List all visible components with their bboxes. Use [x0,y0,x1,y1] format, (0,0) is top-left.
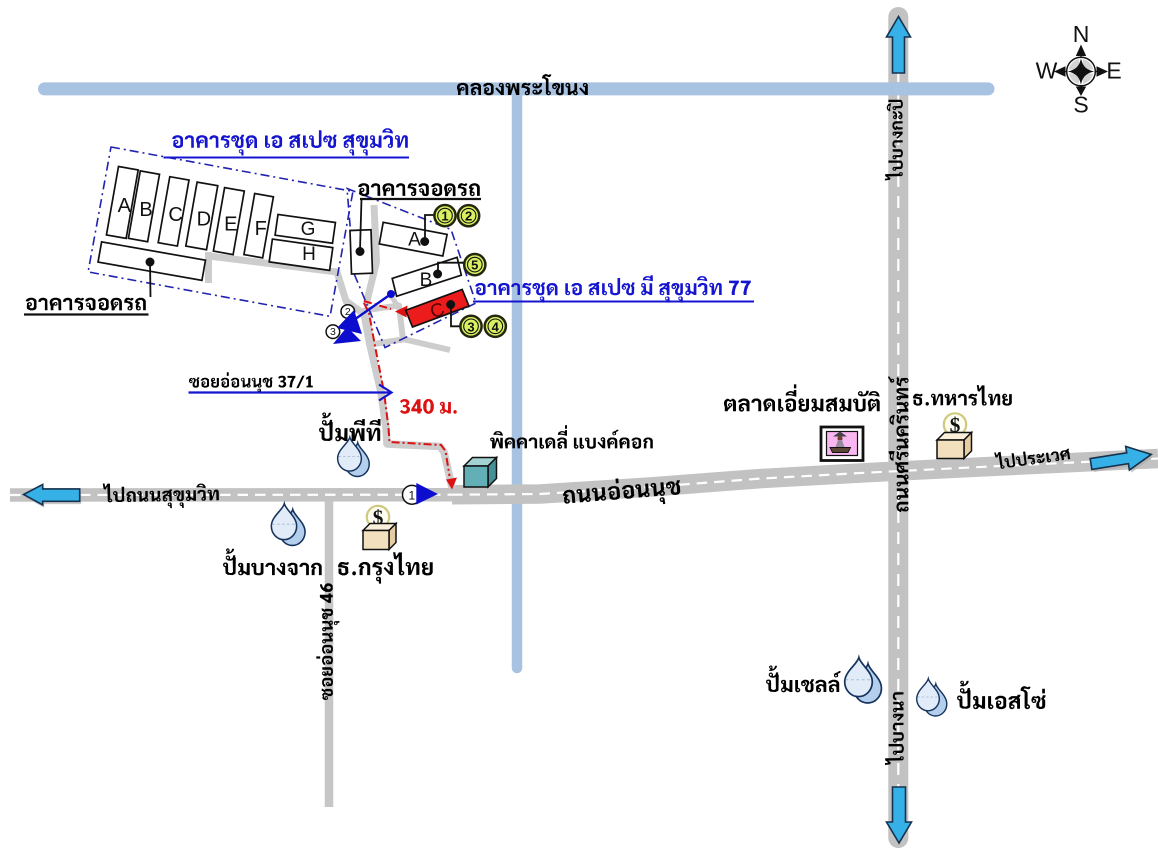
svg-text:A: A [408,230,421,251]
svg-text:1: 1 [409,488,416,502]
svg-text:2: 2 [465,209,472,224]
svg-text:A: A [118,195,132,217]
svg-text:E: E [1106,58,1121,84]
svg-text:S: S [1073,92,1088,118]
svg-text:1: 1 [441,209,448,224]
svg-text:4: 4 [492,319,500,334]
svg-text:5: 5 [471,258,478,273]
svg-text:H: H [302,244,316,265]
svg-text:W: W [1036,58,1058,84]
svg-text:D: D [197,208,211,230]
svg-text:3: 3 [467,319,474,334]
svg-text:G: G [301,219,316,240]
svg-text:E: E [224,214,237,236]
svg-text:3: 3 [330,326,336,338]
svg-text:B: B [139,199,152,221]
svg-text:C: C [168,204,182,226]
svg-text:B: B [420,270,433,291]
svg-text:F: F [255,218,267,240]
svg-text:N: N [1073,21,1090,47]
